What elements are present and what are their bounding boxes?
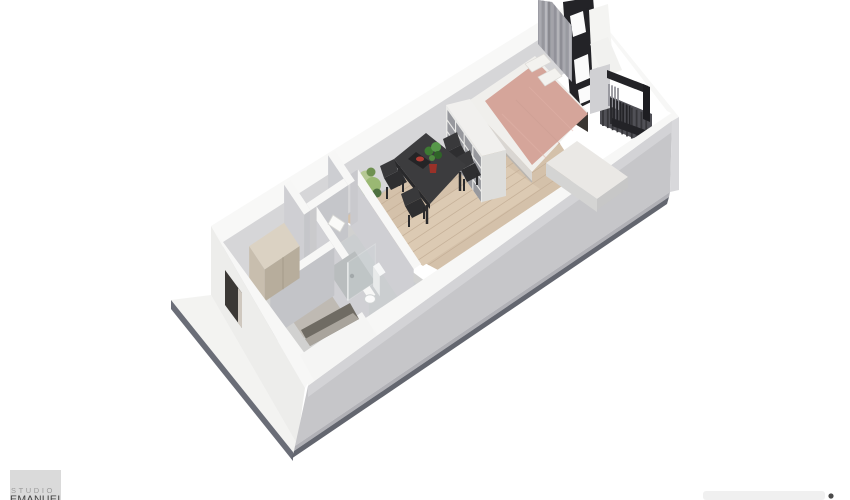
svg-text:EMANUEL: EMANUEL (10, 494, 64, 500)
